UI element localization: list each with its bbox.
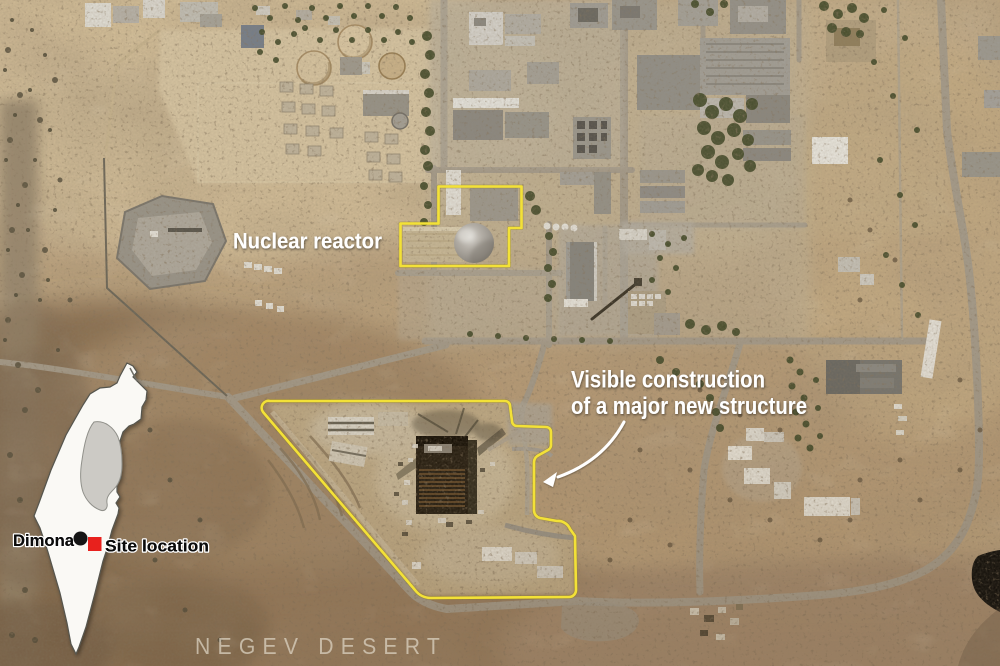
svg-text:Visible construction: Visible construction bbox=[571, 367, 765, 394]
svg-text:of a major new structure: of a major new structure bbox=[571, 393, 807, 420]
svg-text:Site location: Site location bbox=[105, 537, 209, 556]
svg-text:Nuclear reactor: Nuclear reactor bbox=[233, 229, 382, 254]
svg-text:Dimona: Dimona bbox=[13, 531, 75, 550]
svg-text:NEGEV DESERT: NEGEV DESERT bbox=[195, 633, 447, 659]
